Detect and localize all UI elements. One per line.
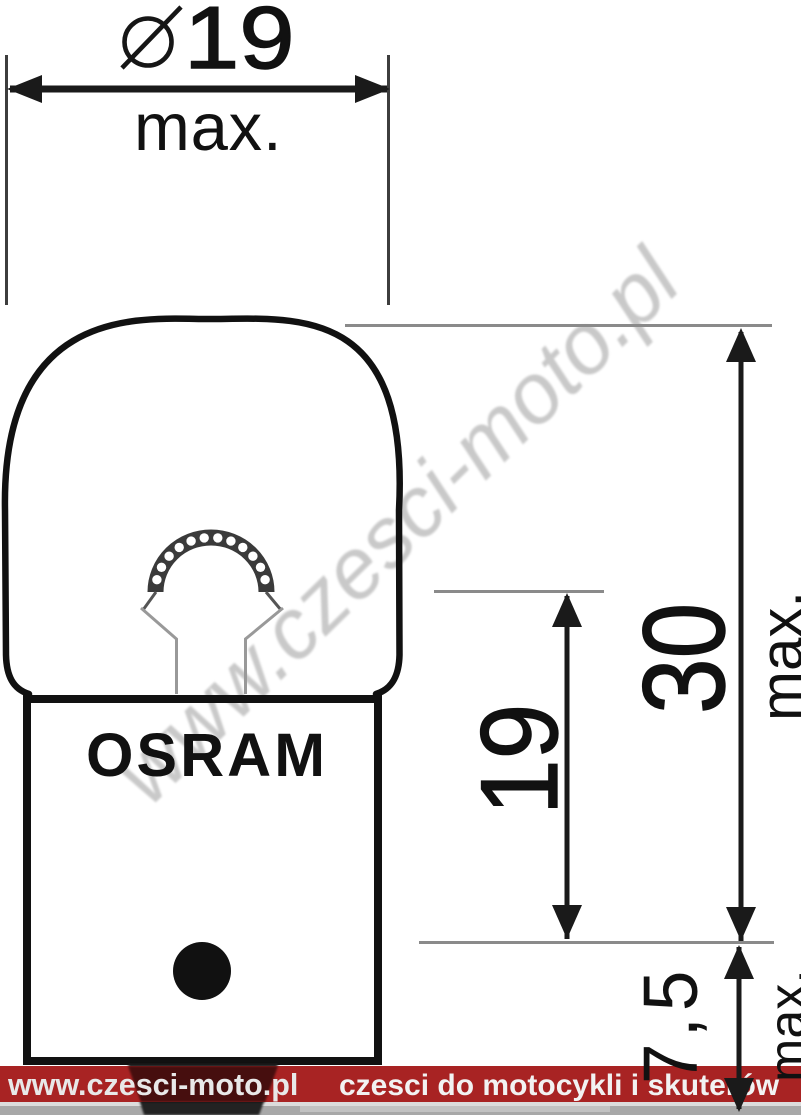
svg-text:max.: max.: [759, 969, 801, 1082]
svg-text:www.czesci-moto.pl: www.czesci-moto.pl: [7, 1068, 298, 1102]
svg-text:7,5: 7,5: [627, 965, 713, 1084]
svg-text:19: 19: [459, 704, 581, 815]
svg-text:max.: max.: [748, 591, 801, 721]
svg-text:czesci do motocykli i skuterów: czesci do motocykli i skuterów: [339, 1069, 780, 1102]
svg-text:19: 19: [184, 0, 295, 87]
svg-text:OSRAM: OSRAM: [86, 721, 328, 789]
svg-text:max.: max.: [134, 90, 282, 165]
svg-text:30: 30: [619, 603, 749, 714]
